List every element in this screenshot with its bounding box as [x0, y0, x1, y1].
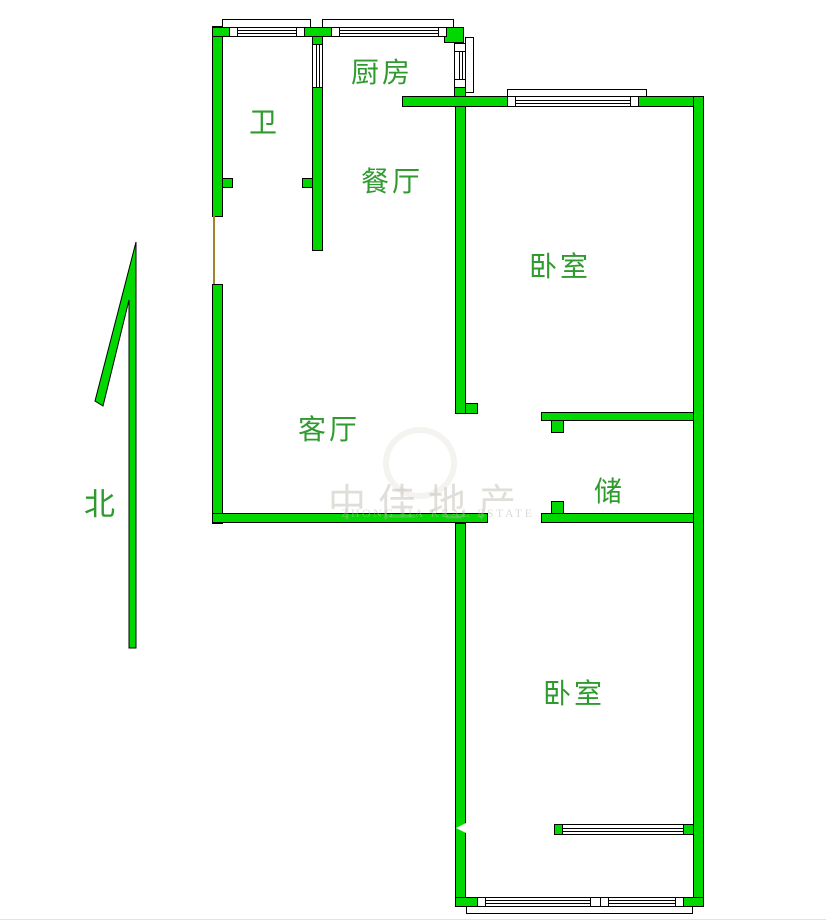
wall-living-bedroom-divider: [455, 106, 466, 414]
room-label-kitchen: 厨房: [351, 51, 413, 91]
storage-door-jamb-top: [551, 420, 564, 433]
interior-window-connector: [683, 824, 694, 835]
window-bathroom-top: [229, 27, 305, 37]
bathroom-door-jamb-left: [222, 178, 233, 188]
window-frame-bedroom-bottom: [466, 906, 693, 914]
wall-left-upper: [212, 26, 223, 217]
wall-storage-bottom: [541, 513, 694, 523]
room-label-dining: 餐厅: [361, 160, 423, 200]
window-bedroom-top: [507, 96, 639, 107]
north-arrow: [90, 238, 142, 653]
window-bedroom-bottom: [477, 897, 684, 907]
bottom-edge-line: [0, 919, 826, 920]
compass-label-north: 北: [84, 479, 118, 524]
room-label-living: 客厅: [298, 408, 360, 448]
floor-plan: 卫 厨房 餐厅 卧室 客厅 储 卧室 北 中佳地产 ZHONG JIA REAL…: [0, 0, 826, 923]
watermark-text-en: ZHONG JIA REAL ESTATE: [341, 506, 534, 521]
wall-bedroom2-left: [455, 523, 466, 898]
wall-bedroom2-bottom-seg1: [455, 897, 478, 907]
door-notch-triangle: [455, 822, 467, 834]
window-kitchen-side: [454, 43, 466, 88]
wall-divider-foot: [465, 403, 478, 414]
bathroom-door-jamb-right: [302, 178, 313, 188]
wall-top-seg3: [444, 27, 464, 43]
storage-door-jamb-bottom: [551, 501, 564, 514]
window-frame-kitchen-side: [465, 37, 474, 93]
room-label-storage: 储: [594, 470, 625, 510]
interior-window-bedroom2: [562, 824, 684, 835]
room-label-bedroom-top: 卧室: [529, 245, 591, 285]
wall-right: [693, 96, 704, 907]
entry-door-line: [213, 216, 215, 284]
room-label-bathroom: 卫: [249, 101, 280, 141]
vent-window-bathroom-divider: [312, 44, 323, 88]
room-label-bedroom-bottom: 卧室: [543, 672, 605, 712]
wall-bedroom2-bottom-seg2: [683, 897, 704, 907]
window-kitchen-top: [331, 27, 447, 37]
wall-bathroom-divider: [312, 87, 323, 251]
wall-left-lower: [212, 284, 223, 524]
